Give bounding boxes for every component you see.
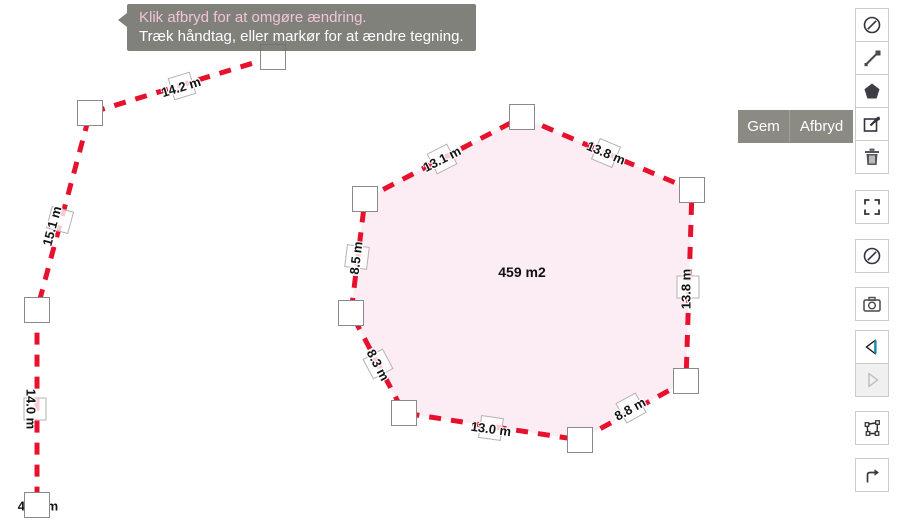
export-icon: [860, 463, 884, 487]
no-entry-button[interactable]: [855, 8, 889, 42]
previous-button[interactable]: [855, 330, 889, 364]
edit-drawing-icon: [860, 112, 884, 136]
cancel-button[interactable]: Afbryd: [790, 110, 853, 143]
vertex-handle[interactable]: [567, 427, 593, 453]
next-icon: [860, 368, 884, 392]
no-entry-button-2[interactable]: [855, 239, 889, 273]
previous-icon: [860, 335, 884, 359]
export-button[interactable]: [855, 458, 889, 492]
vertex-handle[interactable]: [24, 297, 50, 323]
draw-polygon-icon: [860, 79, 884, 103]
fullscreen-icon: [860, 195, 884, 219]
vertex-handle[interactable]: [679, 177, 705, 203]
tooltip-arrow: [118, 13, 127, 27]
vertex-handle[interactable]: [673, 368, 699, 394]
draw-polygon-button[interactable]: [855, 74, 889, 108]
vertex-handle[interactable]: [338, 300, 364, 326]
edge-length-label: 13.8 m: [679, 269, 694, 309]
measure-line-icon: [860, 46, 884, 70]
measure-line-button[interactable]: [855, 41, 889, 75]
no-entry-icon: [860, 244, 884, 268]
map-toolbar: [855, 0, 889, 531]
screenshot-icon: [860, 292, 884, 316]
fullscreen-button[interactable]: [855, 190, 889, 224]
transform-polygon-button[interactable]: [855, 411, 889, 445]
edit-drawing-button[interactable]: [855, 107, 889, 141]
polyline-shape[interactable]: [37, 57, 273, 505]
vertex-handle[interactable]: [509, 104, 535, 130]
tooltip-line-2: Træk håndtag, eller markør for at ændre …: [139, 27, 464, 46]
map-canvas[interactable]: [0, 0, 897, 531]
delete-icon: [860, 145, 884, 169]
vertex-handle[interactable]: [391, 400, 417, 426]
polygon-area-label: 459 m2: [498, 264, 545, 280]
next-button[interactable]: [855, 363, 889, 397]
vertex-handle[interactable]: [352, 186, 378, 212]
segment-length-label: 14.0 m: [24, 389, 39, 429]
vertex-handle[interactable]: [77, 100, 103, 126]
tooltip-line-1: Klik afbryd for at omgøre ændring.: [139, 8, 464, 27]
delete-button[interactable]: [855, 140, 889, 174]
no-entry-icon: [860, 13, 884, 37]
map-editor-screen: { "tooltip": { "line1": "Klik afbryd for…: [0, 0, 897, 531]
save-button[interactable]: Gem: [738, 110, 790, 143]
screenshot-button[interactable]: [855, 287, 889, 321]
save-cancel-panel: Gem Afbryd: [738, 110, 853, 143]
transform-polygon-icon: [860, 416, 884, 440]
vertex-handle[interactable]: [24, 492, 50, 518]
edit-instructions-tooltip: Klik afbryd for at omgøre ændring. Træk …: [127, 4, 476, 51]
